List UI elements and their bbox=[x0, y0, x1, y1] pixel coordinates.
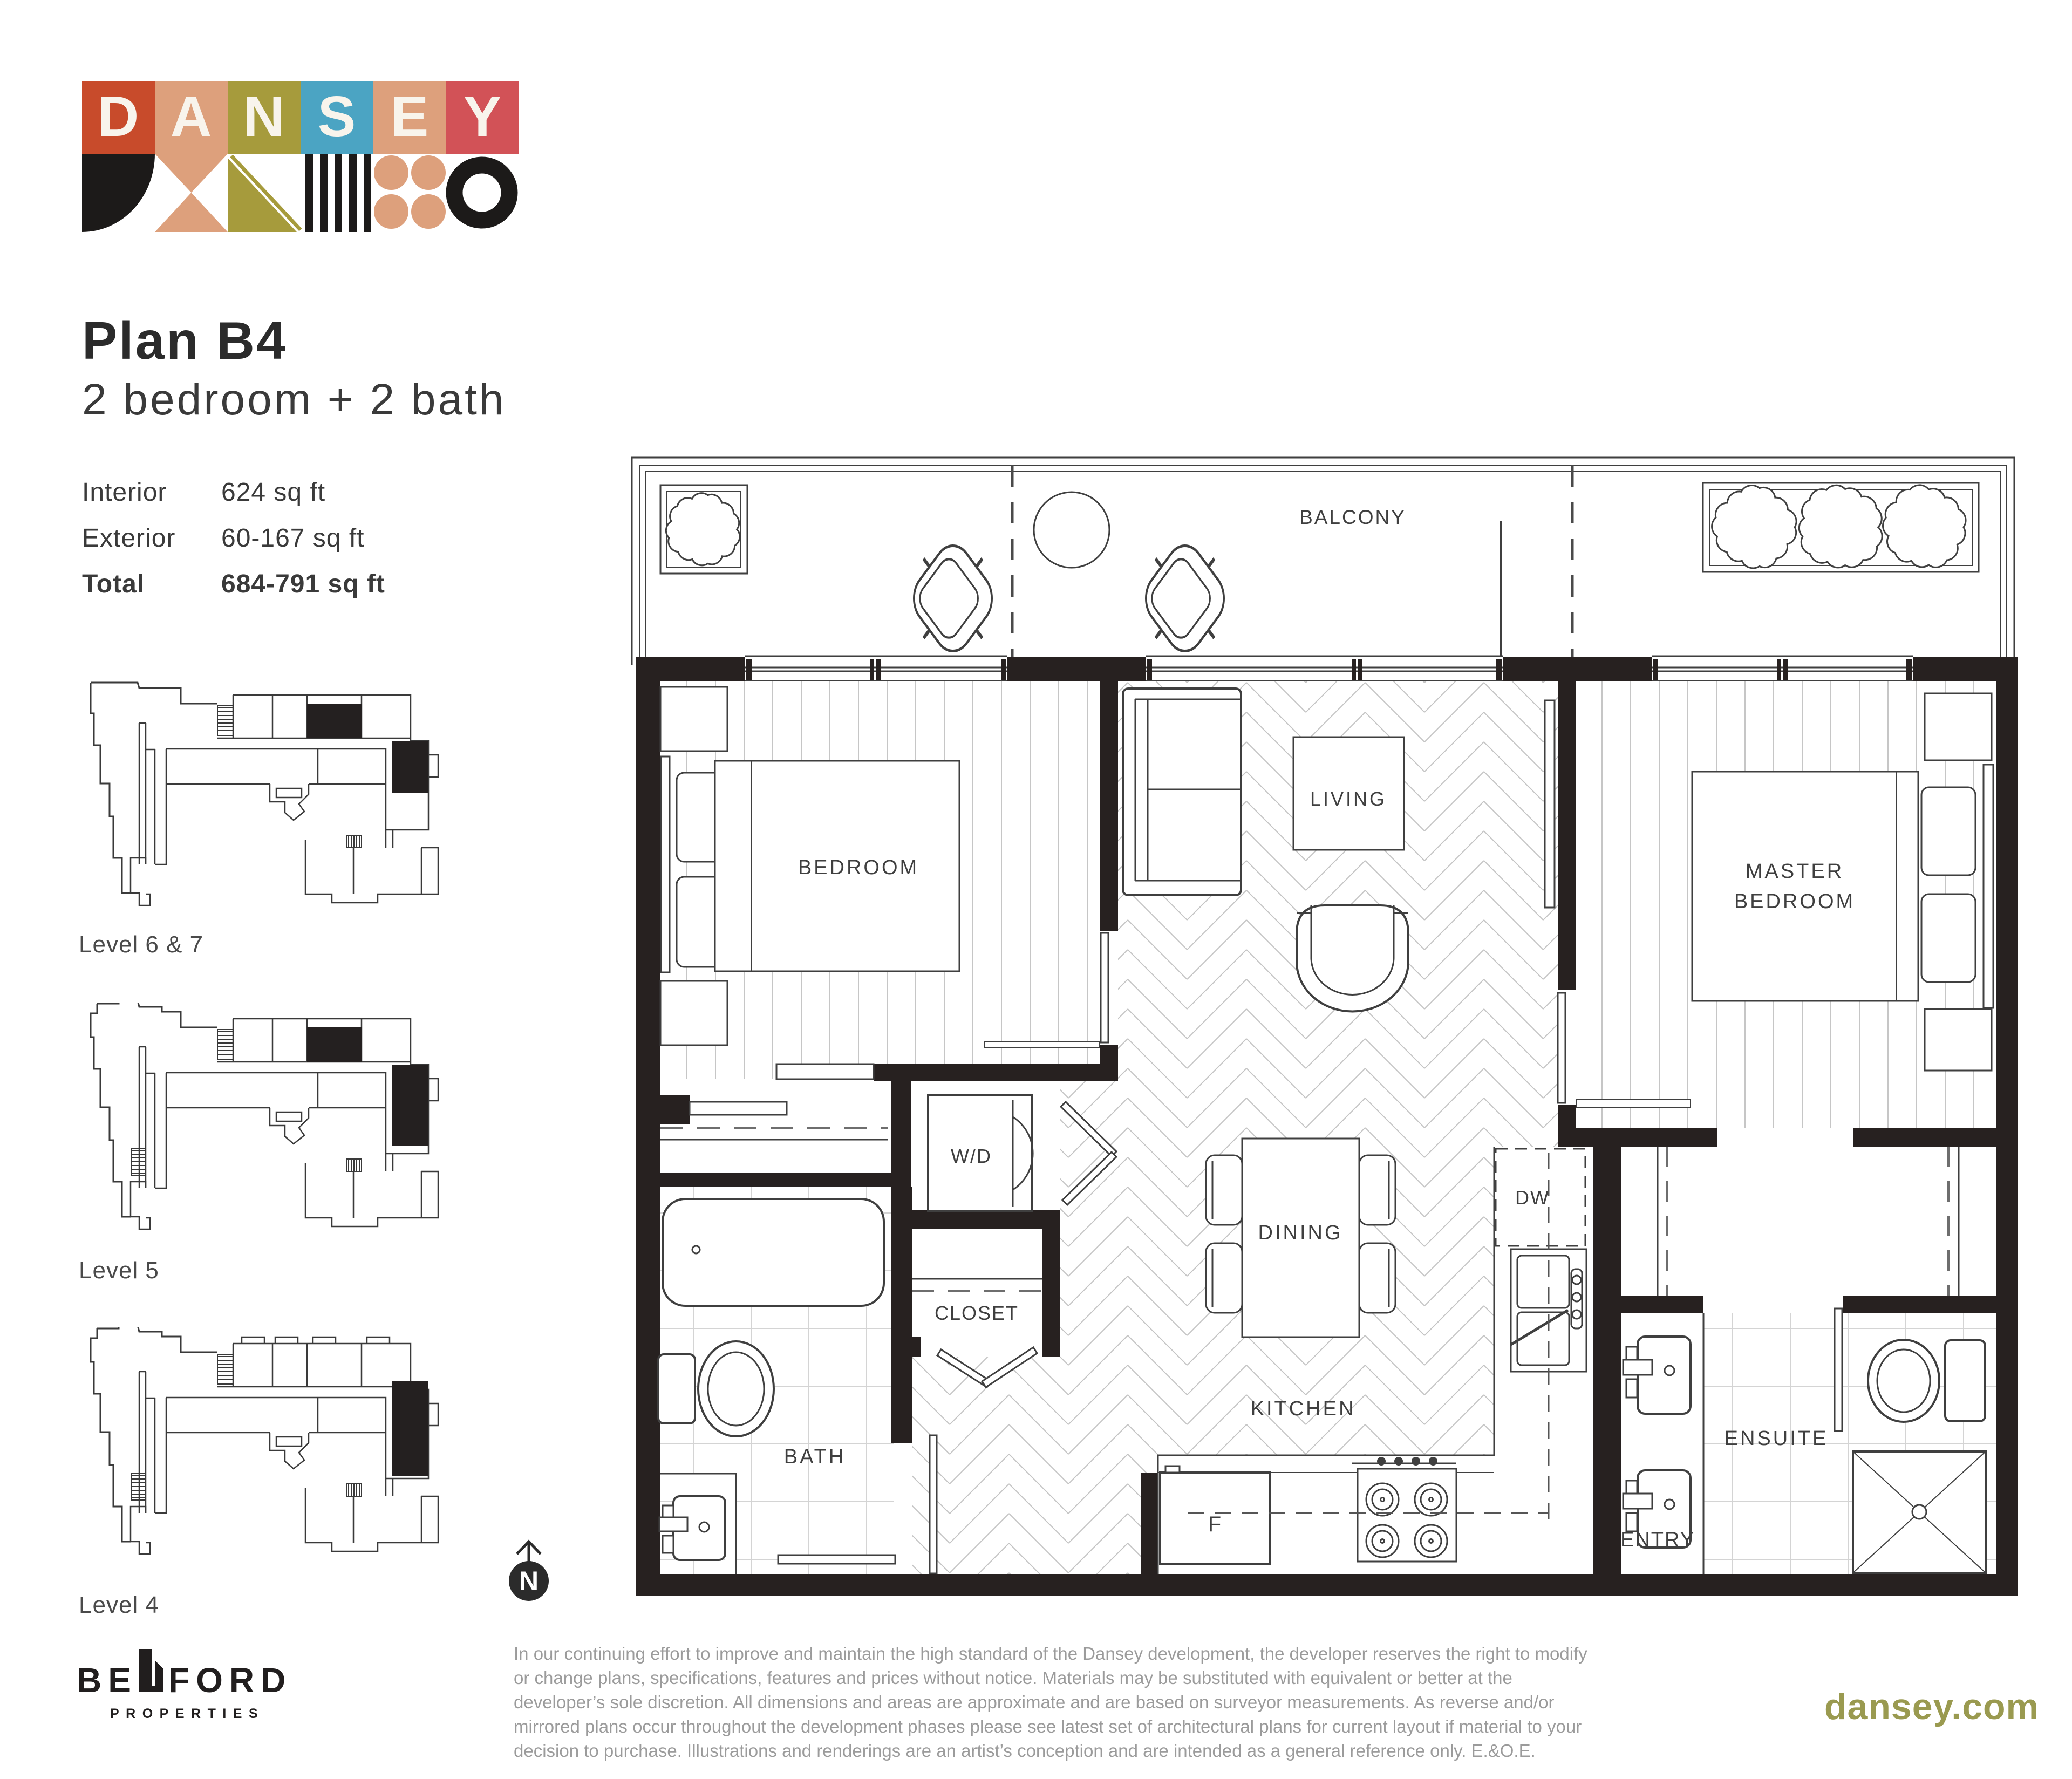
svg-text:S: S bbox=[318, 85, 356, 148]
svg-text:E: E bbox=[391, 85, 429, 148]
svg-text:ENSUITE: ENSUITE bbox=[1725, 1427, 1829, 1450]
svg-text:D: D bbox=[98, 85, 139, 148]
svg-text:BATH: BATH bbox=[784, 1446, 846, 1468]
svg-text:ENTRY: ENTRY bbox=[1620, 1529, 1695, 1551]
svg-text:A: A bbox=[171, 85, 212, 148]
svg-text:BEDROOM: BEDROOM bbox=[1734, 890, 1855, 913]
svg-text:BEDROOM: BEDROOM bbox=[798, 856, 919, 879]
svg-text:F: F bbox=[1208, 1512, 1221, 1536]
svg-text:KITCHEN: KITCHEN bbox=[1251, 1398, 1356, 1420]
svg-text:N: N bbox=[519, 1566, 539, 1596]
svg-text:DW: DW bbox=[1515, 1187, 1550, 1209]
svg-text:BE: BE bbox=[77, 1661, 138, 1700]
svg-text:Y: Y bbox=[464, 85, 502, 148]
svg-text:W/D: W/D bbox=[951, 1145, 992, 1167]
svg-text:DINING: DINING bbox=[1258, 1222, 1343, 1244]
svg-text:N: N bbox=[243, 85, 285, 148]
svg-text:LIVING: LIVING bbox=[1310, 788, 1387, 810]
svg-text:PROPERTIES: PROPERTIES bbox=[110, 1706, 264, 1721]
svg-text:CLOSET: CLOSET bbox=[935, 1302, 1019, 1324]
svg-text:BALCONY: BALCONY bbox=[1299, 506, 1406, 528]
svg-text:MASTER: MASTER bbox=[1746, 860, 1844, 883]
svg-text:FORD: FORD bbox=[168, 1661, 292, 1700]
